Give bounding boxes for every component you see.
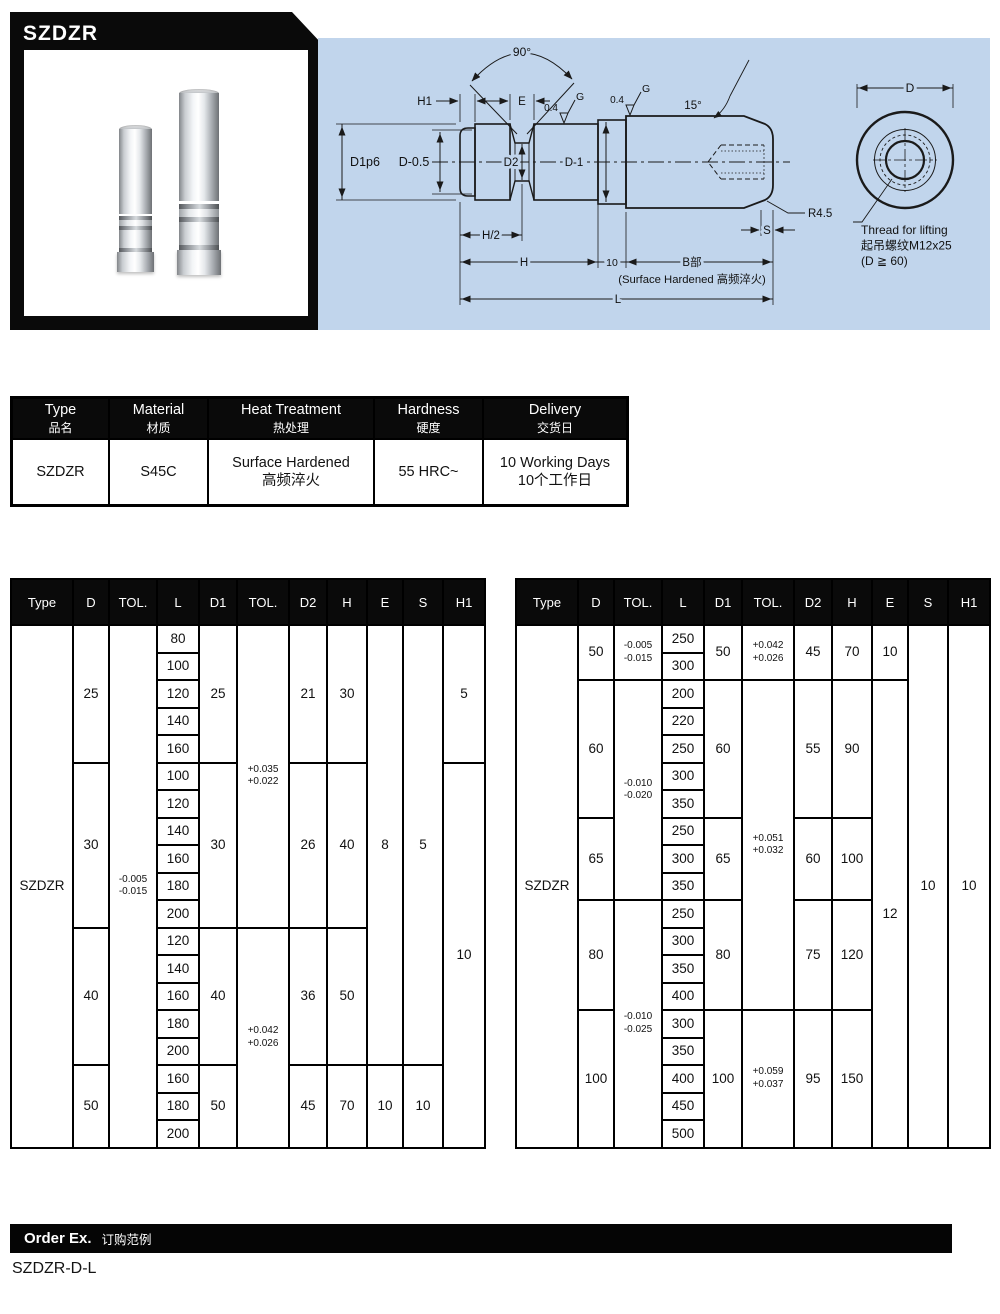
dimension-table-left: TypeDTOL.LD1TOL.D2HESH180100120140160100… <box>10 578 486 1149</box>
summary-header-material: Material材质 <box>110 399 207 438</box>
spec-cell: 95 <box>795 1011 831 1147</box>
product-pin-small <box>119 125 152 272</box>
spec-col-header: E <box>873 580 907 624</box>
spec-cell: 5 <box>444 626 484 762</box>
spec-cell: -0.005 -0.015 <box>615 626 661 679</box>
technical-drawing: D1p6 D-0.5 D2 D-1 E <box>318 38 990 330</box>
spec-cell: 5 <box>404 626 442 1064</box>
spec-cell: 50 <box>328 929 366 1065</box>
spec-cell-length: 250 <box>663 901 703 927</box>
spec-col-header: D1 <box>200 580 236 624</box>
spec-col-header: D2 <box>290 580 326 624</box>
summary-header-heat-treatment: Heat Treatment热处理 <box>209 399 373 438</box>
spec-cell: 65 <box>705 819 741 900</box>
dim-d2: D2 <box>504 157 519 169</box>
product-pin-large <box>179 89 219 275</box>
dim-h-half: H/2 <box>482 230 500 242</box>
dimension-table-right: TypeDTOL.LD1TOL.D2HESH125030020022025030… <box>515 578 991 1149</box>
spec-cell: -0.005 -0.015 <box>110 626 156 1147</box>
spec-cell: 50 <box>579 626 613 679</box>
spec-cell-length: 160 <box>158 984 198 1010</box>
spec-cell: 40 <box>74 929 108 1065</box>
spec-cell: 26 <box>290 764 326 927</box>
spec-col-header: S <box>404 580 442 624</box>
spec-cell-length: 350 <box>663 1039 703 1065</box>
spec-cell: 10 <box>444 764 484 1147</box>
spec-cell-length: 200 <box>158 1121 198 1147</box>
spec-cell: 25 <box>74 626 108 762</box>
spec-col-header: TOL. <box>110 580 156 624</box>
spec-col-header: H <box>833 580 871 624</box>
spec-cell: 10 <box>368 1066 402 1147</box>
dimension-drawing: D1p6 D-0.5 D2 D-1 E <box>318 38 990 330</box>
spec-cell: +0.059 +0.037 <box>743 1011 793 1147</box>
spec-cell-length: 180 <box>158 1011 198 1037</box>
spec-col-header: S <box>909 580 947 624</box>
spec-cell-length: 300 <box>663 1011 703 1037</box>
svg-text:G: G <box>642 83 650 95</box>
spec-cell: 60 <box>705 681 741 817</box>
page-title: SZDZR <box>23 22 98 46</box>
spec-cell: 50 <box>705 626 741 679</box>
dim-b-part: B部 <box>682 255 701 269</box>
dim-s: S <box>763 225 771 237</box>
dim-15deg: 15° <box>684 100 701 112</box>
order-example-bar: Order Ex. 订购范例 <box>10 1224 952 1253</box>
thread-note-en: Thread for lifting <box>861 223 948 237</box>
summary-value-hardness: 55 HRC~ <box>375 440 482 504</box>
surface-finish-mark-1: 0.4 G <box>544 91 584 123</box>
spec-col-header: D <box>74 580 108 624</box>
spec-cell-length: 120 <box>158 681 198 707</box>
spec-cell: 50 <box>74 1066 108 1147</box>
surface-finish-mark-2: 0.4 G <box>610 83 650 115</box>
spec-col-header: Type <box>12 580 72 624</box>
spec-cell-length: 400 <box>663 984 703 1010</box>
spec-cell-length: 160 <box>158 846 198 872</box>
spec-cell: 120 <box>833 901 871 1009</box>
spec-cell-length: 180 <box>158 874 198 900</box>
spec-cell: 36 <box>290 929 326 1065</box>
summary-value-heat-treatment: Surface Hardened 高频淬火 <box>209 440 373 504</box>
order-example-label-en: Order Ex. <box>24 1230 92 1247</box>
spec-cell-length: 500 <box>663 1121 703 1147</box>
thread-note-zh: 起吊螺纹M12x25 <box>861 239 952 253</box>
spec-cell: 150 <box>833 1011 871 1147</box>
summary-value-delivery: 10 Working Days 10个工作日 <box>484 440 626 504</box>
dim-90deg: 90° <box>513 45 531 59</box>
spec-cell: SZDZR <box>517 626 577 1147</box>
spec-cell: 70 <box>833 626 871 679</box>
spec-cell-length: 160 <box>158 1066 198 1092</box>
spec-cell: 10 <box>909 626 947 1147</box>
summary-header-type: Type品名 <box>13 399 108 438</box>
dim-e: E <box>518 96 526 108</box>
spec-cell: 10 <box>873 626 907 679</box>
dim-h: H <box>520 257 528 269</box>
spec-cell-length: 350 <box>663 874 703 900</box>
spec-cell-length: 140 <box>158 956 198 982</box>
spec-cell: 40 <box>200 929 236 1065</box>
spec-col-header: L <box>663 580 703 624</box>
dim-d: D <box>906 81 915 95</box>
spec-cell-length: 180 <box>158 1094 198 1120</box>
spec-cell-length: 80 <box>158 626 198 652</box>
spec-cell-length: 300 <box>663 654 703 680</box>
spec-cell-length: 200 <box>158 901 198 927</box>
summary-value-type: SZDZR <box>13 440 108 504</box>
dim-d1p6: D1p6 <box>350 155 380 169</box>
spec-cell-length: 140 <box>158 819 198 845</box>
spec-col-header: D2 <box>795 580 831 624</box>
spec-cell: 12 <box>873 681 907 1147</box>
spec-cell: 45 <box>290 1066 326 1147</box>
spec-cell-length: 300 <box>663 929 703 955</box>
summary-value-material: S45C <box>110 440 207 504</box>
spec-col-header: D1 <box>705 580 741 624</box>
spec-cell: 21 <box>290 626 326 762</box>
summary-header-hardness: Hardness硬度 <box>375 399 482 438</box>
dim-10: 10 <box>606 257 618 269</box>
order-example-label-zh: 订购范例 <box>102 1229 152 1248</box>
spec-cell: 100 <box>579 1011 613 1147</box>
spec-cell: 30 <box>200 764 236 927</box>
summary-header-delivery: Delivery交货日 <box>484 399 626 438</box>
dim-d-minus-05: D-0.5 <box>399 155 430 169</box>
product-photo <box>24 50 308 316</box>
spec-cell: 75 <box>795 901 831 1009</box>
dim-h1: H1 <box>417 96 432 108</box>
spec-col-header: Type <box>517 580 577 624</box>
spec-cell: 65 <box>579 819 613 900</box>
spec-cell: 40 <box>328 764 366 927</box>
end-view: D Thread for lifting 起吊螺纹M12x25 (D ≧ 60) <box>853 81 953 268</box>
spec-cell: 8 <box>368 626 402 1064</box>
spec-cell-length: 120 <box>158 929 198 955</box>
svg-text:0.4: 0.4 <box>610 95 624 106</box>
spec-col-header: L <box>158 580 198 624</box>
product-title-panel: SZDZR <box>10 12 322 330</box>
spec-cell: +0.042 +0.026 <box>238 929 288 1147</box>
spec-cell-length: 220 <box>663 709 703 735</box>
spec-col-header: E <box>368 580 402 624</box>
spec-col-header: H <box>328 580 366 624</box>
spec-col-header: H1 <box>444 580 484 624</box>
spec-cell: 70 <box>328 1066 366 1147</box>
spec-cell: 10 <box>404 1066 442 1147</box>
spec-cell: -0.010 -0.020 <box>615 681 661 899</box>
spec-cell: 80 <box>579 901 613 1009</box>
svg-text:0.4: 0.4 <box>544 103 558 114</box>
dim-r45: R4.5 <box>808 208 832 220</box>
spec-cell-length: 300 <box>663 764 703 790</box>
spec-cell-length: 100 <box>158 654 198 680</box>
spec-cell-length: 250 <box>663 736 703 762</box>
spec-cell-length: 200 <box>158 1039 198 1065</box>
spec-col-header: TOL. <box>743 580 793 624</box>
spec-col-header: D <box>579 580 613 624</box>
spec-cell-length: 250 <box>663 626 703 652</box>
spec-cell-length: 250 <box>663 819 703 845</box>
spec-cell: 55 <box>795 681 831 817</box>
spec-cell: +0.042 +0.026 <box>743 626 793 679</box>
dim-l: L <box>615 294 622 306</box>
thread-note-cond: (D ≧ 60) <box>861 254 908 268</box>
spec-cell-length: 100 <box>158 764 198 790</box>
spec-cell: +0.051 +0.032 <box>743 681 793 1009</box>
spec-cell-length: 300 <box>663 846 703 872</box>
spec-cell: +0.035 +0.022 <box>238 626 288 927</box>
catalog-page: SZDZR <box>0 0 1000 1314</box>
spec-cell: 90 <box>833 681 871 817</box>
spec-cell: 25 <box>200 626 236 762</box>
spec-col-header: H1 <box>949 580 989 624</box>
spec-cell: 10 <box>949 626 989 1147</box>
spec-cell-length: 350 <box>663 791 703 817</box>
surface-hardened-note: (Surface Hardened 高频淬火) <box>618 272 766 286</box>
spec-cell: 80 <box>705 901 741 1009</box>
spec-cell: SZDZR <box>12 626 72 1147</box>
spec-cell-length: 120 <box>158 791 198 817</box>
spec-cell-length: 200 <box>663 681 703 707</box>
spec-cell: -0.010 -0.025 <box>615 901 661 1147</box>
spec-cell-length: 350 <box>663 956 703 982</box>
spec-cell: 60 <box>579 681 613 817</box>
spec-cell: 30 <box>328 626 366 762</box>
svg-text:G: G <box>576 91 584 103</box>
spec-cell: 60 <box>795 819 831 900</box>
spec-cell-length: 400 <box>663 1066 703 1092</box>
dim-d-minus-1: D-1 <box>565 157 584 169</box>
spec-cell: 100 <box>833 819 871 900</box>
spec-cell: 100 <box>705 1011 741 1147</box>
spec-col-header: TOL. <box>238 580 288 624</box>
spec-cell: 50 <box>200 1066 236 1147</box>
spec-cell: 45 <box>795 626 831 679</box>
spec-cell-length: 140 <box>158 709 198 735</box>
spec-summary-table: Type品名 Material材质 Heat Treatment热处理 Hard… <box>10 396 629 507</box>
spec-cell-length: 160 <box>158 736 198 762</box>
order-example-code: SZDZR-D-L <box>12 1260 96 1278</box>
spec-col-header: TOL. <box>615 580 661 624</box>
spec-cell-length: 450 <box>663 1094 703 1120</box>
spec-cell: 30 <box>74 764 108 927</box>
